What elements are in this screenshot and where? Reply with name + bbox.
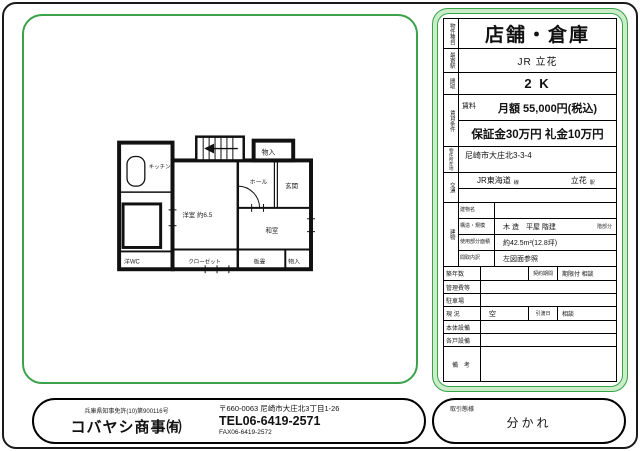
unit-equipment-value xyxy=(481,334,616,346)
property-panel: 物件種目 店舗・倉庫 最寄駅 JR 立花 間取 2 K 賃貸条件 賃料 月額 5… xyxy=(432,8,628,392)
room-label-storage-top: 物入 xyxy=(262,147,276,156)
row-rent-terms: 賃貸条件 賃料 月額 55,000円(税込) 保証金30万円 礼金10万円 xyxy=(444,95,616,147)
row-parking: 駐車場 xyxy=(444,294,616,307)
company-identity: 兵庫県知事免許(10)第900116号 コバヤシ商事㈲ xyxy=(34,406,219,437)
row-unit-equipment: 各戸設備 xyxy=(444,334,616,347)
room-label-closet: クローゼット xyxy=(188,257,221,265)
company-contact: 〒660-0063 尼崎市大庄北3丁目1-26 TEL06-6419-2571 … xyxy=(219,404,424,437)
current-status-label: 現 況 xyxy=(444,307,481,320)
row-building: 建物 建物名 構造・規模 木 造 平屋 階建 階部分 使用部分面積 xyxy=(444,203,616,267)
structure-label: 構造・規模 xyxy=(459,219,495,234)
row-age: 築年数 契約期間 期限付 相談 xyxy=(444,267,616,281)
age-value xyxy=(481,267,528,280)
rent-terms-content: 賃料 月額 55,000円(税込) 保証金30万円 礼金10万円 xyxy=(459,95,616,146)
property-table: 物件種目 店舗・倉庫 最寄駅 JR 立花 間取 2 K 賃貸条件 賃料 月額 5… xyxy=(443,18,617,382)
row-access: 交通 JR東海道 線 立花 駅 xyxy=(444,173,616,203)
room-label-wc: 洋WC xyxy=(124,257,141,265)
handover-value: 相談 xyxy=(558,307,616,320)
floorplan-drawing: キッチン 物入 玄関 ホール 洋室 約6.5 和室 板畳 クローゼット 洋WC … xyxy=(24,16,416,382)
layout-detail-row: 間取内訳 左図面参照 xyxy=(459,251,616,266)
parking-label: 駐車場 xyxy=(444,294,481,306)
structure-value-wrap: 木 造 平屋 階建 階部分 xyxy=(495,222,616,232)
remarks-value xyxy=(481,347,616,381)
area-label: 使用部分面積 xyxy=(459,235,495,250)
property-type-label: 物件種目 xyxy=(444,19,459,48)
room-label-hall: ホール xyxy=(250,179,268,186)
structure-row: 構造・規模 木 造 平屋 階建 階部分 xyxy=(459,219,616,235)
area-value: 約42.5m²(12.8坪) xyxy=(495,238,616,248)
building-name-row: 建物名 xyxy=(459,203,616,219)
license-number: 兵庫県知事免許(10)第900116号 xyxy=(34,406,219,415)
deal-type-value: 分かれ xyxy=(434,414,624,431)
nearest-station-value: JR 立花 xyxy=(459,49,616,72)
rent-sub-label: 賃料 xyxy=(462,101,476,111)
bathtub-icon xyxy=(127,156,145,186)
layout-detail-label: 間取内訳 xyxy=(459,251,495,266)
access-line-suffix: 線 xyxy=(514,179,519,186)
rent-monthly-row: 賃料 月額 55,000円(税込) xyxy=(459,95,616,121)
nearest-station-label: 最寄駅 xyxy=(444,49,459,72)
building-name-label: 建物名 xyxy=(459,203,495,218)
unit-equipment-label: 各戸設備 xyxy=(444,334,481,346)
address-label: 物件所在地 xyxy=(444,147,459,172)
contract-value: 期限付 相談 xyxy=(558,267,616,280)
rent-monthly-value: 月額 55,000円(税込) xyxy=(479,100,616,116)
room-label-storage-bottom: 物入 xyxy=(288,257,300,265)
company-fax: FAX06-6419-2572 xyxy=(219,429,424,437)
layout-label: 間取 xyxy=(444,73,459,94)
deal-type-box: 取引態様 分かれ xyxy=(432,398,626,444)
structure-value: 木 造 平屋 階建 xyxy=(503,222,556,232)
row-property-type: 物件種目 店舗・倉庫 xyxy=(444,19,616,49)
layout-value: 2 K xyxy=(459,73,616,94)
row-current-status: 現 況 空 引渡日 相談 xyxy=(444,307,616,321)
management-fee-value xyxy=(481,281,616,293)
row-remarks: 備 考 xyxy=(444,347,616,381)
management-fee-label: 管理費等 xyxy=(444,281,481,293)
access-station-name: 立花 xyxy=(571,175,587,186)
layout-detail-value: 左図面参照 xyxy=(495,254,616,264)
remarks-label: 備 考 xyxy=(444,347,481,381)
company-info-box: 兵庫県知事免許(10)第900116号 コバヤシ商事㈲ 〒660-0063 尼崎… xyxy=(32,398,426,444)
floorplan-box: キッチン 物入 玄関 ホール 洋室 約6.5 和室 板畳 クローゼット 洋WC … xyxy=(22,14,418,384)
main-equipment-label: 本体設備 xyxy=(444,321,481,333)
access-blank-row xyxy=(459,189,616,202)
room-label-western-room: 洋室 約6.5 xyxy=(182,210,212,219)
main-equipment-value xyxy=(481,321,616,333)
company-name: コバヤシ商事㈲ xyxy=(34,416,219,437)
structure-suffix: 階部分 xyxy=(597,223,612,230)
wall-inner-court xyxy=(123,204,161,248)
access-label: 交通 xyxy=(444,173,459,202)
property-type-value: 店舗・倉庫 xyxy=(459,19,616,48)
property-panel-inner: 物件種目 店舗・倉庫 最寄駅 JR 立花 間取 2 K 賃貸条件 賃料 月額 5… xyxy=(437,13,623,387)
parking-value xyxy=(481,294,616,306)
building-label: 建物 xyxy=(444,203,459,266)
row-layout: 間取 2 K xyxy=(444,73,616,95)
room-label-japanese-room: 和室 xyxy=(266,226,279,235)
rent-deposit-value: 保証金30万円 礼金10万円 xyxy=(459,121,616,146)
access-line-name: JR東海道 xyxy=(477,175,511,186)
address-value: 尼崎市大庄北3-3-4 xyxy=(459,147,616,172)
property-flyer-page: { "colors": { "frame_green": "#3aa34a", … xyxy=(0,0,640,451)
row-main-equipment: 本体設備 xyxy=(444,321,616,334)
company-address: 〒660-0063 尼崎市大庄北3丁目1-26 xyxy=(219,404,424,413)
row-address: 物件所在地 尼崎市大庄北3-3-4 xyxy=(444,147,616,173)
company-tel: TEL06-6419-2571 xyxy=(219,414,424,430)
row-management-fee: 管理費等 xyxy=(444,281,616,294)
handover-label: 引渡日 xyxy=(528,307,558,320)
current-status-value: 空 xyxy=(481,307,528,320)
age-label: 築年数 xyxy=(444,267,481,280)
access-line-row: JR東海道 線 立花 駅 xyxy=(459,173,616,189)
row-nearest-station: 最寄駅 JR 立花 xyxy=(444,49,616,73)
staircase xyxy=(196,137,243,161)
room-label-entrance: 玄関 xyxy=(285,181,298,190)
room-label-kitchen: キッチン xyxy=(149,163,171,170)
door-arc xyxy=(238,186,260,208)
building-content: 建物名 構造・規模 木 造 平屋 階建 階部分 使用部分面積 約42.5m²(1… xyxy=(459,203,616,266)
access-content: JR東海道 線 立花 駅 xyxy=(459,173,616,202)
area-row: 使用部分面積 約42.5m²(12.8坪) xyxy=(459,235,616,251)
room-label-board-room: 板畳 xyxy=(254,257,266,265)
deal-type-label: 取引態様 xyxy=(450,404,474,413)
rent-terms-label: 賃貸条件 xyxy=(444,95,459,146)
contract-label: 契約期間 xyxy=(528,267,558,280)
access-station-suffix: 駅 xyxy=(590,179,595,186)
